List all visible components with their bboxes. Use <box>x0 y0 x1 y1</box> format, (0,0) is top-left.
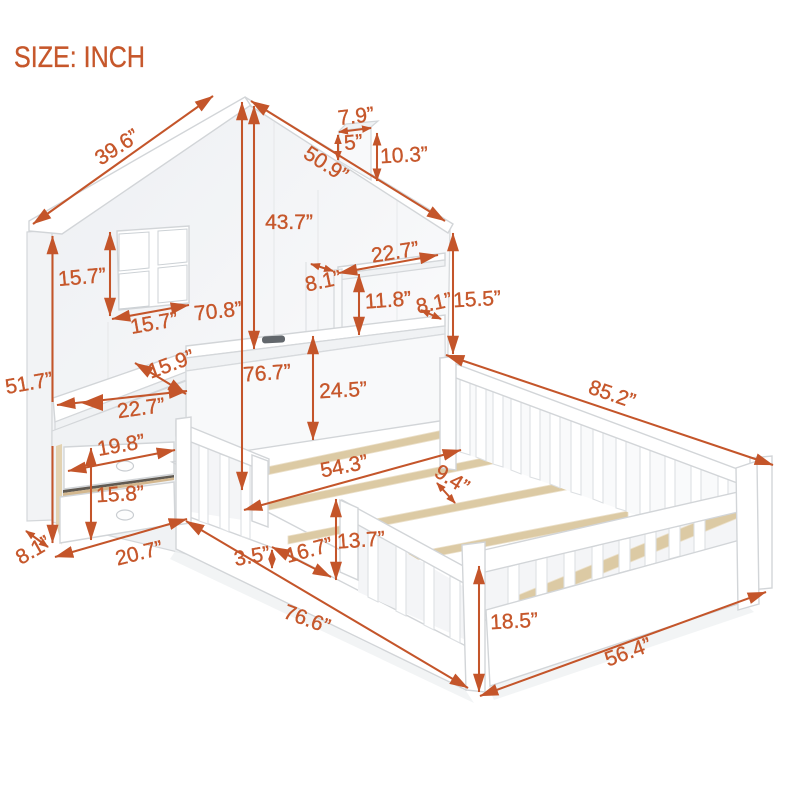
svg-text:20.7”: 20.7” <box>113 537 165 571</box>
svg-text:15.5”: 15.5” <box>453 287 502 312</box>
svg-text:10.3”: 10.3” <box>380 143 429 168</box>
svg-text:SIZE: INCH: SIZE: INCH <box>14 41 145 74</box>
svg-text:24.5”: 24.5” <box>319 378 368 403</box>
svg-text:7.9”: 7.9” <box>337 103 376 130</box>
svg-text:11.8”: 11.8” <box>364 287 412 313</box>
svg-text:15.8”: 15.8” <box>96 482 145 507</box>
svg-text:15.7”: 15.7” <box>57 264 107 291</box>
svg-text:13.7”: 13.7” <box>336 527 385 553</box>
svg-text:76.7”: 76.7” <box>242 360 291 386</box>
svg-text:8.1”: 8.1” <box>12 531 55 569</box>
svg-text:85.2”: 85.2” <box>585 376 638 413</box>
svg-text:18.5”: 18.5” <box>490 609 539 634</box>
svg-text:5”: 5” <box>343 130 364 155</box>
svg-text:43.7”: 43.7” <box>265 211 313 234</box>
